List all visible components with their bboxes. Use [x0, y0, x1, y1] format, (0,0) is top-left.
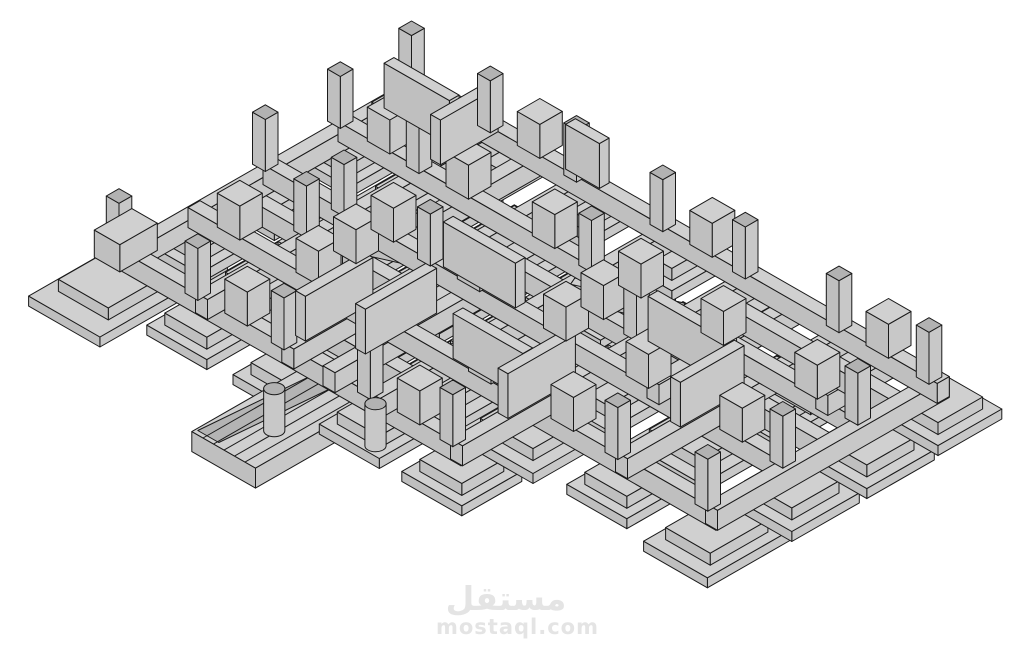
model-viewport: مستقل mostaql.com — [0, 0, 1012, 650]
column-post — [328, 69, 341, 128]
column-post — [478, 74, 491, 133]
column-post — [929, 325, 942, 384]
column-post — [271, 291, 284, 350]
cylinder-pile-top — [365, 398, 386, 410]
column-post — [605, 400, 618, 459]
column-post — [770, 409, 783, 468]
column-post — [733, 220, 746, 279]
foundation-3d-model — [0, 0, 1012, 650]
column-post — [579, 213, 592, 272]
column-post — [695, 452, 708, 511]
wall-panel — [599, 138, 609, 188]
column-post — [265, 112, 278, 171]
column-post — [185, 241, 198, 300]
wall-panel — [296, 291, 306, 341]
wall-panel — [356, 304, 366, 354]
wall-panel — [498, 368, 508, 418]
column-post — [663, 172, 676, 231]
column-post — [490, 74, 503, 133]
wall-panel — [671, 377, 681, 427]
column-post — [826, 273, 839, 332]
wall-panel — [515, 258, 525, 308]
column-post — [916, 325, 929, 384]
column-post — [198, 241, 211, 300]
cylinder-pile-body — [264, 389, 285, 437]
column-post — [708, 452, 721, 511]
column-post — [331, 157, 344, 216]
cylinder-pile-top — [264, 383, 285, 395]
column-post — [440, 387, 453, 446]
column-post — [253, 112, 266, 171]
column-post — [845, 366, 858, 425]
column-post — [858, 366, 871, 425]
column-post — [783, 409, 796, 468]
column-post — [453, 387, 466, 446]
column-post — [618, 400, 631, 459]
column-post — [284, 291, 297, 350]
column-post — [430, 207, 443, 266]
column-post — [340, 69, 353, 128]
column-post — [294, 179, 307, 238]
column-post — [418, 207, 431, 266]
column-post — [745, 220, 758, 279]
column-post — [650, 172, 663, 231]
column-post — [839, 273, 852, 332]
wall-panel — [431, 114, 441, 164]
cylinder-pile-body — [365, 404, 386, 452]
